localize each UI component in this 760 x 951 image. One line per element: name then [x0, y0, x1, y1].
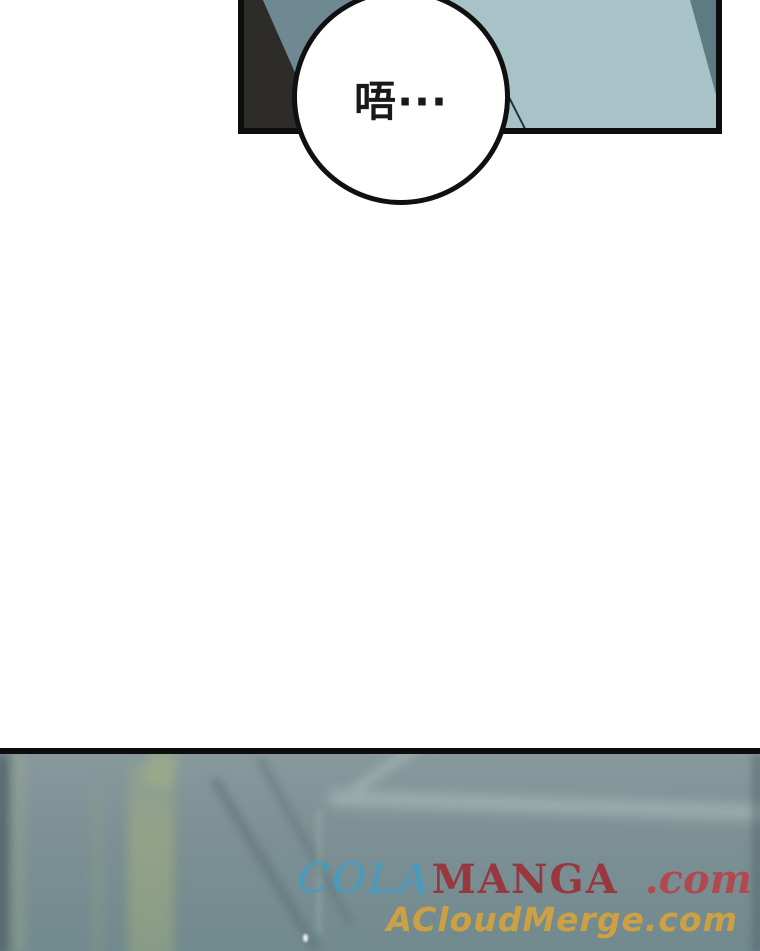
speech-bubble-text: 唔··· — [354, 66, 448, 129]
panel-art-light-diagonal-band — [330, 790, 760, 821]
panel-gutter-whitespace — [0, 205, 760, 748]
panel-art-light-beam-faint-mid — [90, 784, 105, 951]
panel-art-light-diagonal-short — [350, 748, 429, 795]
panel-art-light-beam-faint-left — [8, 754, 26, 951]
watermark-colamanga: COLAMANGA.com — [298, 859, 752, 900]
comic-panel-bottom: COLAMANGA.com ACloudMerge.com — [0, 748, 760, 951]
watermark-domain-suffix: .com — [645, 856, 752, 903]
panel-art-right-edge-shadow — [752, 754, 760, 951]
speech-bubble: 唔··· — [292, 0, 510, 205]
watermark-acloudmerge: ACloudMerge.com — [387, 903, 739, 936]
watermark-manga-text: MANGA — [432, 856, 619, 903]
watermark-cola-text: COLA — [298, 855, 432, 903]
panel-art-white-speck — [303, 934, 308, 942]
panel-art-light-beam-main — [128, 762, 174, 951]
